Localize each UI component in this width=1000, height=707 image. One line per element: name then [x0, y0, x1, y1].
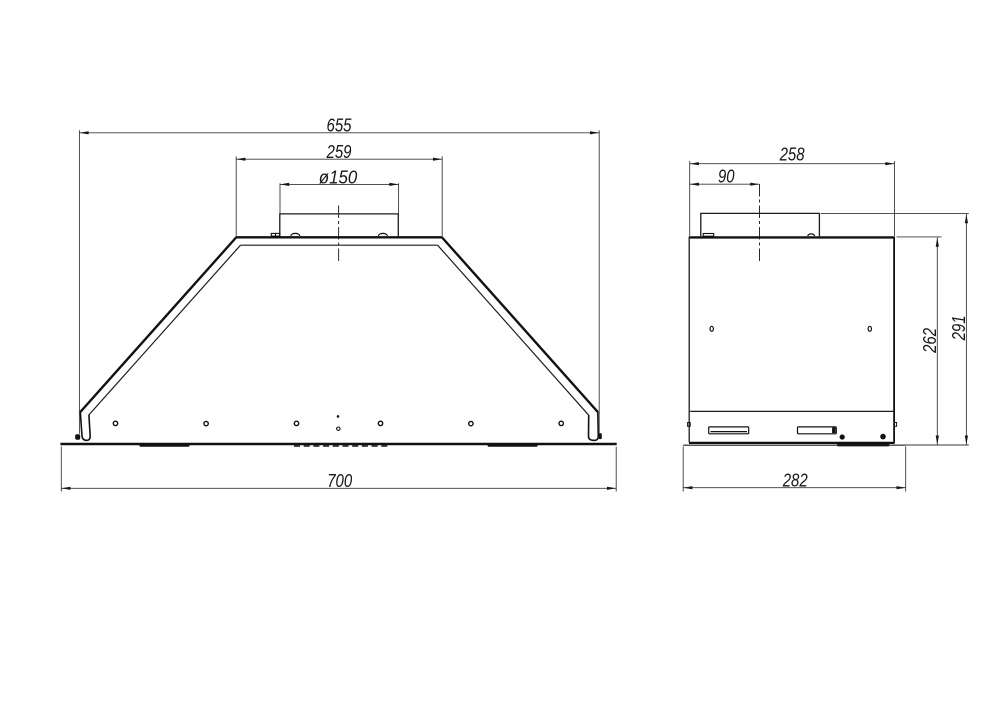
svg-text:291: 291 — [949, 315, 969, 341]
svg-text:90: 90 — [718, 167, 735, 187]
svg-text:655: 655 — [327, 116, 353, 136]
svg-text:259: 259 — [326, 142, 352, 162]
svg-text:258: 258 — [779, 145, 805, 165]
svg-text:ø150: ø150 — [319, 168, 358, 188]
svg-text:282: 282 — [782, 471, 808, 491]
svg-text:262: 262 — [920, 328, 940, 354]
svg-text:700: 700 — [327, 471, 352, 491]
